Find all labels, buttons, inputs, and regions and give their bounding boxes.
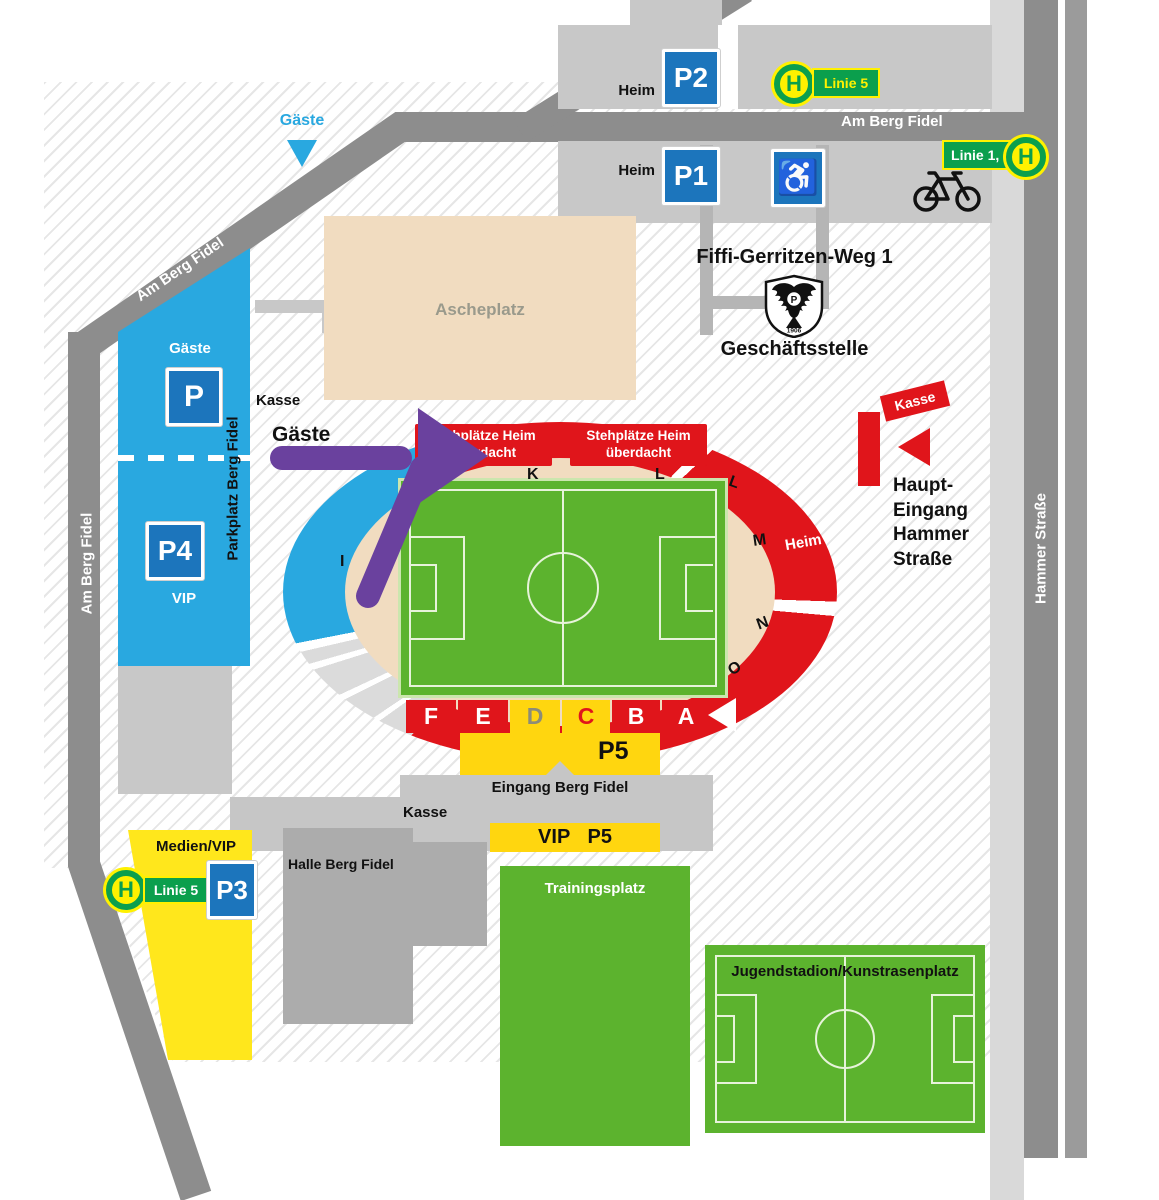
parking-sign-p2-label: P2 (674, 62, 708, 94)
haupt-eingang-line: Hammer (893, 523, 1023, 548)
jugend-goal-left (715, 1015, 735, 1063)
section-d-label: D (527, 703, 544, 730)
club-crest: P 1906 (764, 274, 824, 338)
haupt-eingang-label: Haupt- Eingang Hammer Straße (893, 474, 1023, 573)
jugend-goal-right (953, 1015, 973, 1063)
wheelchair-parking-icon: ♿ (771, 149, 825, 207)
heim-mid-label: Heim (600, 162, 655, 179)
parking-sign-p4: P4 (146, 522, 204, 580)
haupt-eingang-line: Eingang (893, 499, 1023, 524)
parkplatz-berg-fidel-label: Parkplatz Berg Fidel (225, 389, 242, 589)
guest-parking-label: Gäste (160, 340, 220, 357)
section-e-label: E (475, 703, 490, 730)
trainingsplatz-label: Trainingsplatz (500, 880, 690, 897)
parking-sign-p1-label: P1 (674, 160, 708, 192)
kasse-east-label: Kasse (893, 388, 937, 414)
kasse-south-label: Kasse (403, 804, 447, 821)
guest-route-top-label: Gäste (272, 112, 332, 130)
eingang-berg-fidel-label: Eingang Berg Fidel (460, 779, 660, 796)
h-glyph: H (786, 73, 802, 95)
crest-initial: P (791, 295, 798, 306)
section-b: B (612, 700, 660, 733)
section-c: C (562, 700, 610, 733)
entrance-east-bar (858, 412, 880, 486)
linie-5-sw-label: Linie 5 (154, 882, 198, 898)
heim-top-label: Heim (600, 82, 655, 99)
address-label: Fiffi-Gerritzen-Weg 1 (682, 246, 907, 269)
section-e: E (458, 700, 508, 733)
guest-route-arrow (250, 380, 510, 620)
haupt-eingang-line: Straße (893, 548, 1023, 573)
h-glyph: H (118, 879, 134, 901)
crest-year: 1906 (787, 328, 802, 335)
h-glyph: H (1018, 146, 1034, 168)
bus-stop-top-icon: H (774, 64, 814, 104)
road-east-outer (1065, 0, 1087, 1158)
section-l: L (655, 466, 665, 484)
haupt-eingang-line: Haupt- (893, 474, 1023, 499)
section-b-label: B (628, 703, 645, 730)
p5-notch (546, 761, 574, 775)
bus-stop-east-icon: H (1006, 137, 1046, 177)
section-d: D (510, 700, 560, 733)
stadium-area-map: { "colors": { "road_gray": "#8D8D8D", "p… (0, 0, 1159, 1200)
street-label-west: Am Berg Fidel (79, 494, 96, 634)
trainingsplatz-field: Trainingsplatz (500, 866, 690, 1146)
panel-north-gap (718, 25, 738, 109)
ascheplatz-label: Ascheplatz (424, 300, 536, 320)
sidewalk-strip-east (990, 0, 1024, 1200)
jugendstadion-label: Jugendstadion/Kunstrasenplatz (705, 963, 985, 980)
street-label-top: Am Berg Fidel (841, 113, 943, 130)
parking-sign-p: P (166, 368, 222, 426)
bus-stop-sw-icon: H (106, 870, 146, 910)
halle-berg-fidel-label: Halle Berg Fidel (288, 856, 394, 872)
section-a: A (662, 700, 710, 733)
vip-label: VIP (156, 590, 212, 607)
halle-berg-fidel-annex (413, 842, 487, 946)
gate-arrow-southeast-icon (708, 698, 736, 732)
linie-5-sw-badge: Linie 5 (143, 876, 209, 904)
parking-sign-p3: P3 (207, 861, 257, 919)
medien-vip-label: Medien/VIP (146, 838, 246, 855)
vip-p5-label: VIP P5 (538, 826, 612, 849)
parking-sign-p1: P1 (662, 147, 720, 205)
pitch-goal-right (685, 564, 713, 612)
parking-sign-p-label: P (184, 380, 204, 414)
jugendstadion-field: Jugendstadion/Kunstrasenplatz (705, 945, 985, 1133)
office-label: Geschäftsstelle (702, 338, 887, 361)
entrance-east-arrow-icon (898, 428, 930, 466)
section-f: F (406, 700, 456, 733)
p5-label: P5 (598, 737, 629, 766)
section-m: M (752, 531, 768, 551)
vip-p5-strip: VIP P5 (490, 823, 660, 852)
building-below-lot (118, 666, 232, 794)
linie-1-9-label: Linie 1, 9 (951, 147, 1011, 163)
parking-sign-p3-label: P3 (216, 875, 248, 906)
linie-5-top-badge: Linie 5 (812, 68, 880, 98)
section-c-label: C (578, 703, 595, 730)
stand-home-roofed-east: Stehplätze Heim überdacht (570, 424, 707, 466)
section-k: K (527, 466, 539, 484)
section-a-label: A (678, 703, 695, 730)
pitch-center-circle (527, 552, 599, 624)
street-label-hammer: Hammer Straße (1033, 479, 1050, 619)
parking-sign-p2: P2 (662, 49, 720, 107)
section-f-label: F (424, 703, 438, 730)
parking-sign-p4-label: P4 (158, 535, 192, 567)
jugend-center-circle (815, 1009, 875, 1069)
guest-route-arrow-down-icon (287, 140, 317, 167)
linie-5-top-label: Linie 5 (824, 75, 868, 91)
wheelchair-glyph: ♿ (777, 158, 819, 198)
